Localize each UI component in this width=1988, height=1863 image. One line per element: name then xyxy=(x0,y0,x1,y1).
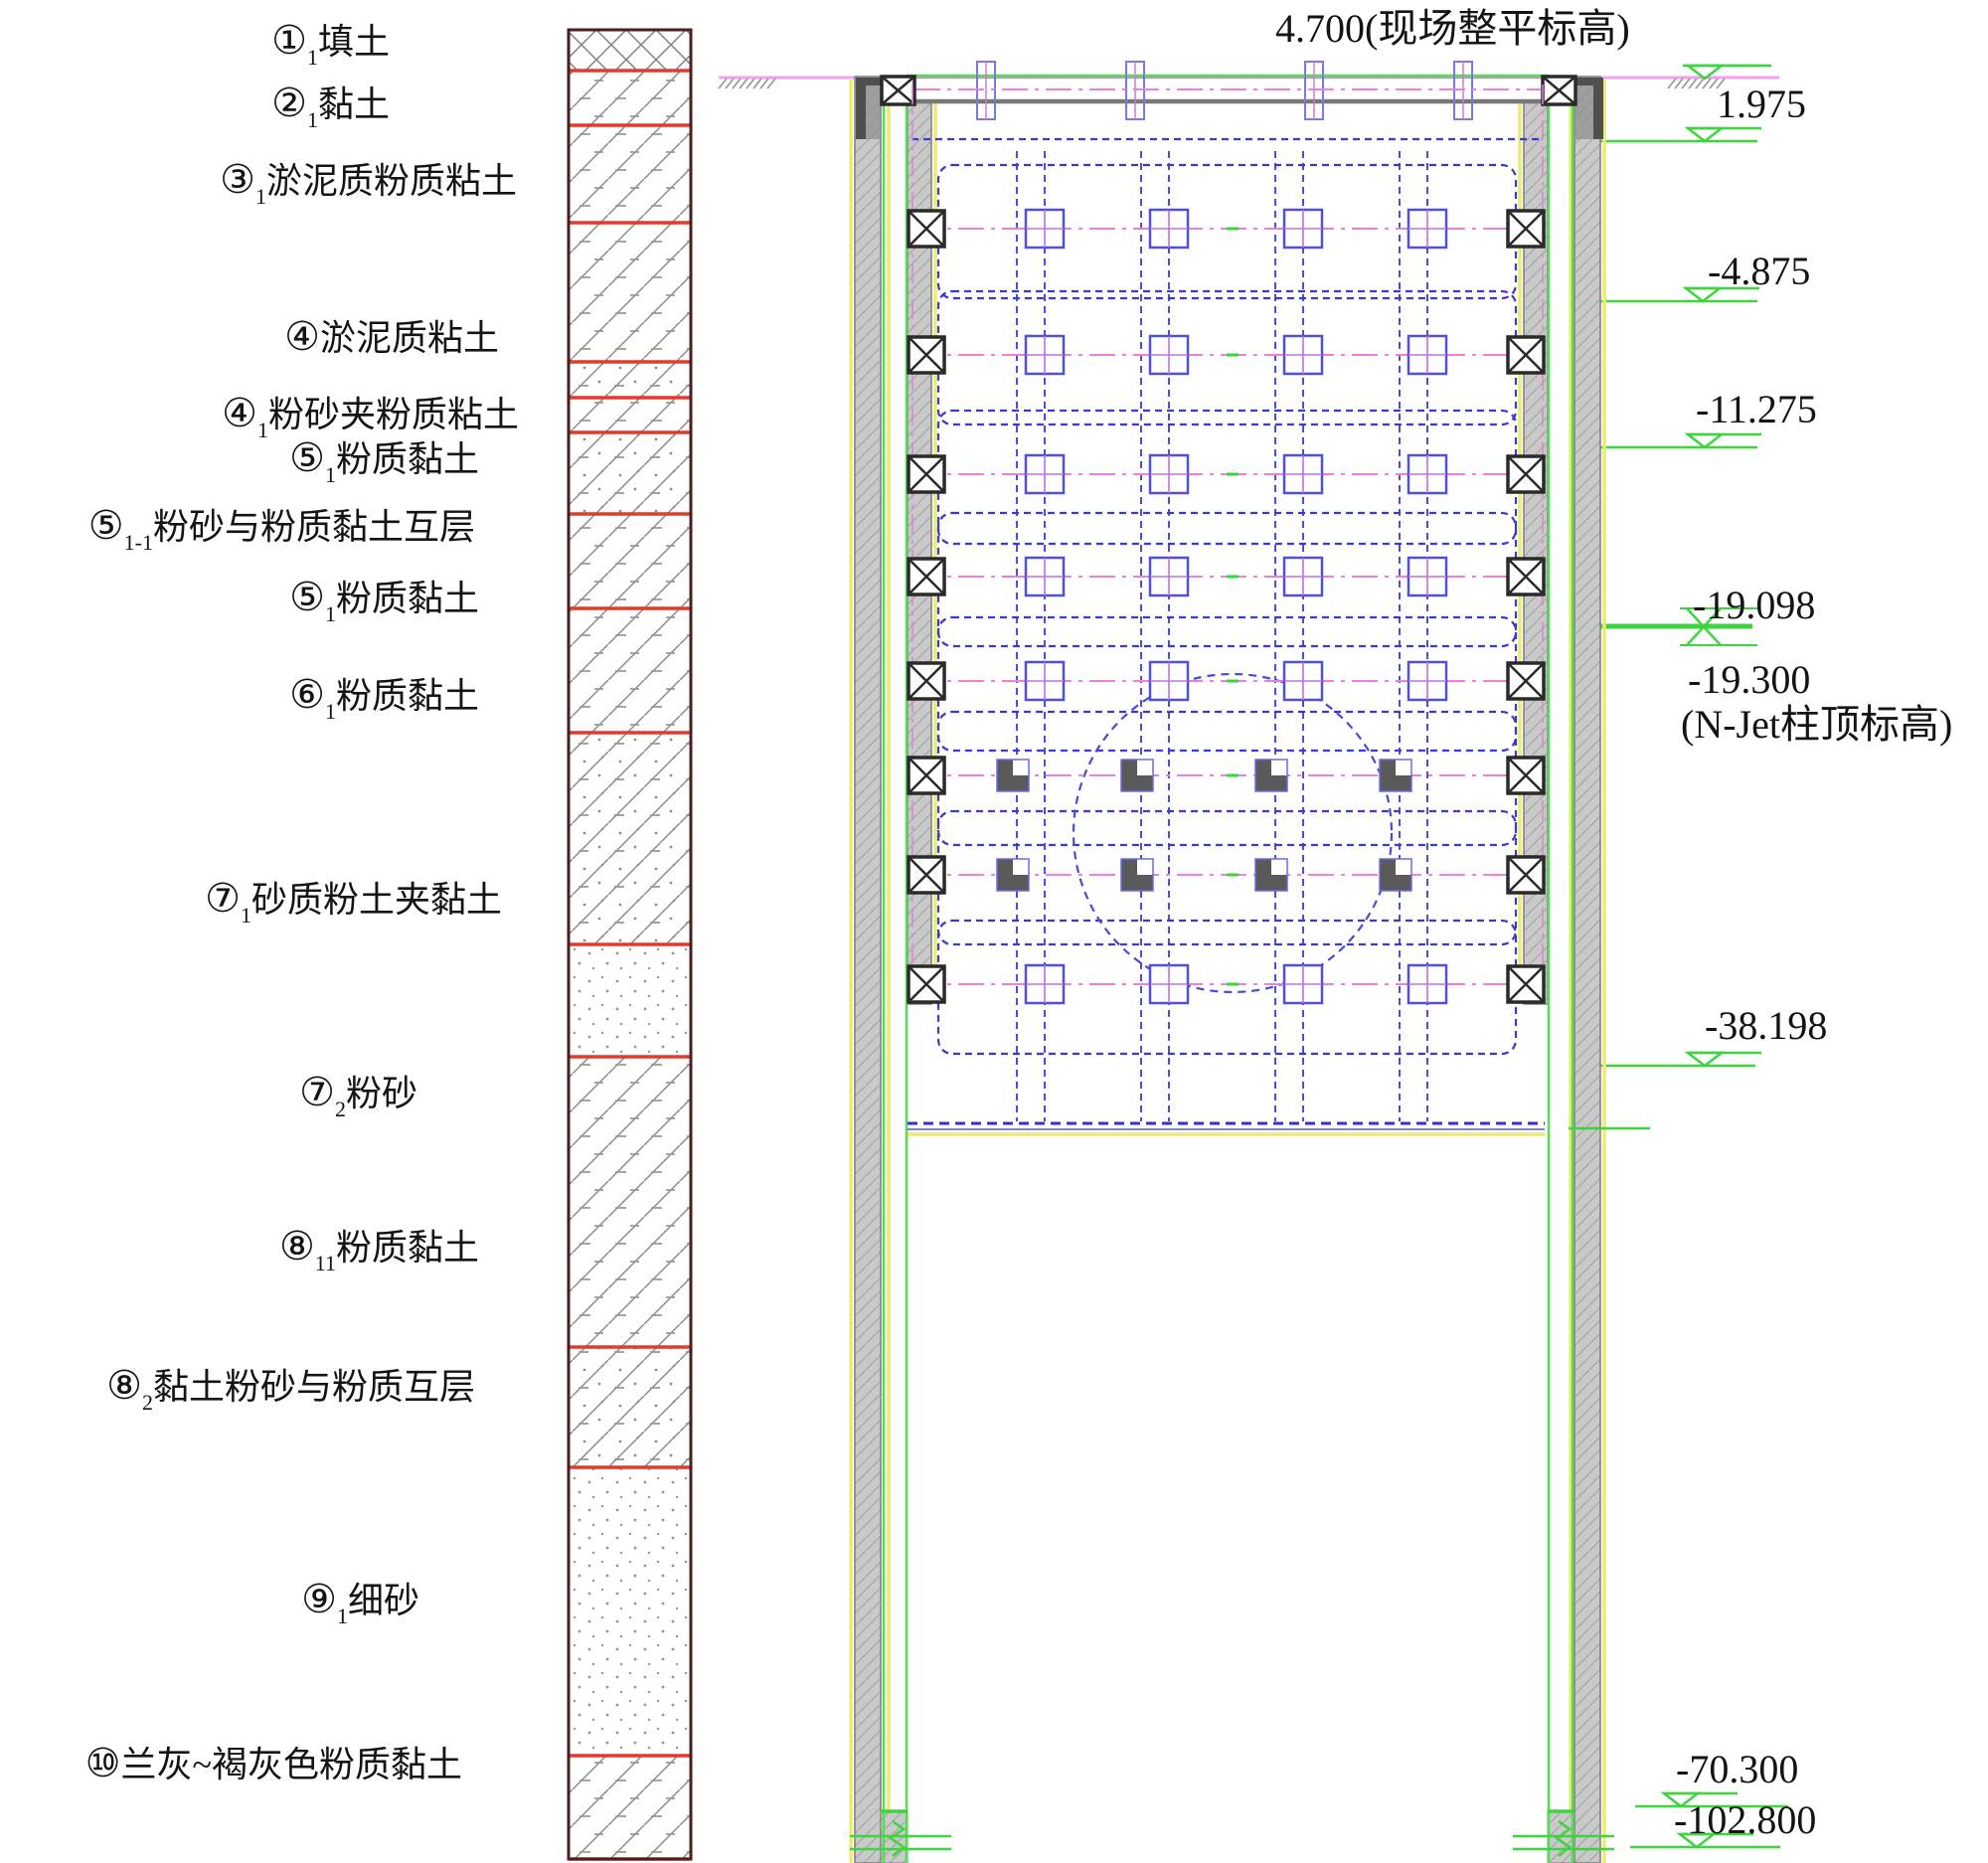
waler-box xyxy=(909,337,944,373)
soil-layer-label: ③1淤泥质粉质粘土 xyxy=(220,157,517,209)
waler-box xyxy=(1508,337,1544,373)
column-node-square xyxy=(1284,336,1322,374)
waler-box xyxy=(1508,758,1544,793)
soil-layer-rect xyxy=(569,30,691,71)
column-node-square xyxy=(1284,558,1322,595)
soil-layer-label: ⑤1粉质黏土 xyxy=(289,575,479,626)
line xyxy=(1689,79,1697,88)
waler-box xyxy=(909,456,944,492)
internal-structure xyxy=(908,139,1545,1129)
line xyxy=(1682,79,1690,88)
soil-layer-label: ⑧2黏土粉砂与粉质互层 xyxy=(106,1363,475,1415)
column-node-square xyxy=(1150,210,1188,248)
section-drawing-canvas: ①1填土②1黏土③1淤泥质粉质粘土④淤泥质粘土④1粉砂夹粉质粘土⑤1粉质黏土⑤1… xyxy=(0,0,1988,1863)
waler-box xyxy=(1508,663,1544,699)
waler-box xyxy=(909,966,944,1002)
waler-box xyxy=(909,663,944,699)
elevation-label: -19.300 xyxy=(1688,657,1810,702)
column-node-square xyxy=(1150,558,1188,595)
soil-layer-rect xyxy=(569,944,691,1057)
waler-box xyxy=(1508,211,1544,247)
line xyxy=(1675,79,1683,88)
level-marker-triangle xyxy=(1688,1053,1722,1066)
geological-section-diagram: ①1填土②1黏土③1淤泥质粉质粘土④淤泥质粘土④1粉砂夹粉质粘土⑤1粉质黏土⑤1… xyxy=(0,0,1988,1863)
capping-beam xyxy=(911,62,1543,119)
dark-node-square xyxy=(1380,859,1411,891)
soil-layer-label: ⑩兰灰~褐灰色粉质黏土 xyxy=(85,1741,462,1785)
line xyxy=(719,79,727,88)
soil-layer-rect xyxy=(569,1756,691,1859)
column-node-square xyxy=(1026,210,1064,248)
line xyxy=(746,79,754,88)
soil-layer-label: ⑦2粉砂 xyxy=(299,1070,417,1121)
dark-node-square xyxy=(1380,760,1411,791)
dark-node-square xyxy=(997,760,1029,791)
column-node-square xyxy=(1284,965,1322,1003)
ground-hatch-ticks xyxy=(719,79,775,88)
waler-box xyxy=(909,758,944,793)
diaphragm-wall xyxy=(855,77,881,1863)
level-marker-triangle xyxy=(1688,434,1722,447)
soil-layer-rect xyxy=(569,362,691,398)
soil-layer-rect xyxy=(569,71,691,125)
column-node-square xyxy=(1408,558,1446,595)
elevation-label: (N-Jet柱顶标高) xyxy=(1681,702,1952,747)
column-node-square xyxy=(1284,455,1322,493)
diaphragm-wall xyxy=(1574,77,1600,1863)
dark-node-notch xyxy=(1013,859,1029,875)
column-node-square xyxy=(1026,336,1064,374)
waler-box xyxy=(1508,966,1544,1002)
dark-node-square xyxy=(1255,760,1287,791)
dark-node-notch xyxy=(1271,760,1287,775)
waler-box xyxy=(909,857,944,893)
column-node-square xyxy=(1026,662,1064,700)
soil-layer-rect xyxy=(569,432,691,514)
elevation-label: -4.875 xyxy=(1708,249,1810,293)
dark-node-notch xyxy=(1137,859,1153,875)
soil-layer-label: ⑦1砂质粉土夹黏土 xyxy=(205,876,502,928)
dark-node-square xyxy=(1255,859,1287,891)
column-node-square xyxy=(1150,662,1188,700)
soil-layer-label: ⑧11粉质黏土 xyxy=(279,1224,479,1275)
waler-box xyxy=(1508,559,1544,594)
soil-layer-label: ⑤1-1粉砂与粉质黏土互层 xyxy=(88,503,475,555)
column-node-square xyxy=(1408,336,1446,374)
column-node-square xyxy=(1150,965,1188,1003)
column-node-square xyxy=(1284,662,1322,700)
dark-node-notch xyxy=(1013,760,1029,775)
column-node-square xyxy=(1408,455,1446,493)
soil-layer-rect xyxy=(569,733,691,944)
soil-layer-label: ②1黏土 xyxy=(271,81,390,132)
column-node-square xyxy=(1408,662,1446,700)
dark-node-square xyxy=(1121,859,1153,891)
waler-box xyxy=(909,211,944,247)
soil-layer-rect xyxy=(569,398,691,432)
line xyxy=(733,79,741,88)
dark-node-notch xyxy=(1396,760,1411,775)
column-node-square xyxy=(1026,455,1064,493)
column-node-square xyxy=(1150,336,1188,374)
soil-layer-rect xyxy=(569,1347,691,1467)
column-node-square xyxy=(1408,210,1446,248)
soil-layer-rect xyxy=(569,1057,691,1347)
text-labels: ①1填土②1黏土③1淤泥质粉质粘土④淤泥质粘土④1粉砂夹粉质粘土⑤1粉质黏土⑤1… xyxy=(85,6,1953,1842)
dark-node-notch xyxy=(1396,859,1411,875)
column-node-square xyxy=(1026,558,1064,595)
line xyxy=(760,79,768,88)
waler-box xyxy=(882,77,914,104)
soil-layer-rect xyxy=(569,223,691,362)
level-marker-triangle xyxy=(1688,128,1722,141)
waler-box xyxy=(1508,857,1544,893)
soil-layer-rect xyxy=(569,514,691,608)
elevation-label: 4.700(现场整平标高) xyxy=(1275,6,1630,51)
line xyxy=(1668,79,1676,88)
elevation-label: -70.300 xyxy=(1676,1747,1798,1791)
column-node-square xyxy=(1284,210,1322,248)
line xyxy=(767,79,775,88)
line xyxy=(740,79,747,88)
dark-node-notch xyxy=(1137,760,1153,775)
soil-layer-label: ④淤泥质粘土 xyxy=(284,314,499,359)
elevation-label: -19.098 xyxy=(1693,583,1815,627)
wall-yellow-edges xyxy=(851,80,1604,1863)
dark-node-notch xyxy=(1271,859,1287,875)
soil-layer-rect xyxy=(569,125,691,223)
line xyxy=(753,79,761,88)
soil-layer-label: ④1粉砂夹粉质粘土 xyxy=(222,391,519,442)
line xyxy=(1696,79,1704,88)
elevation-label: -38.198 xyxy=(1705,1003,1827,1048)
soil-layer-rect xyxy=(569,1467,691,1756)
soil-layer-label: ⑨1细砂 xyxy=(301,1577,419,1628)
column-node-square xyxy=(1150,455,1188,493)
soil-layer-rect xyxy=(569,608,691,733)
dark-node-square xyxy=(997,859,1029,891)
line xyxy=(1703,79,1711,88)
elevation-label: 1.975 xyxy=(1717,82,1806,126)
column-node-square xyxy=(1408,965,1446,1003)
soil-layer-label: ⑤1粉质黏土 xyxy=(289,435,479,487)
waler-box xyxy=(909,559,944,594)
soil-borehole-column xyxy=(569,30,691,1859)
soil-layer-label: ①1填土 xyxy=(271,18,390,70)
waler-box xyxy=(1508,456,1544,492)
waler-box xyxy=(1543,77,1575,104)
elevation-label: -11.275 xyxy=(1696,387,1817,431)
line xyxy=(726,79,734,88)
column-node-square xyxy=(1026,965,1064,1003)
dark-node-square xyxy=(1121,760,1153,791)
elevation-label: -102.800 xyxy=(1674,1797,1816,1842)
strut-levels xyxy=(882,77,1575,1003)
soil-layer-label: ⑥1粉质黏土 xyxy=(289,672,479,724)
